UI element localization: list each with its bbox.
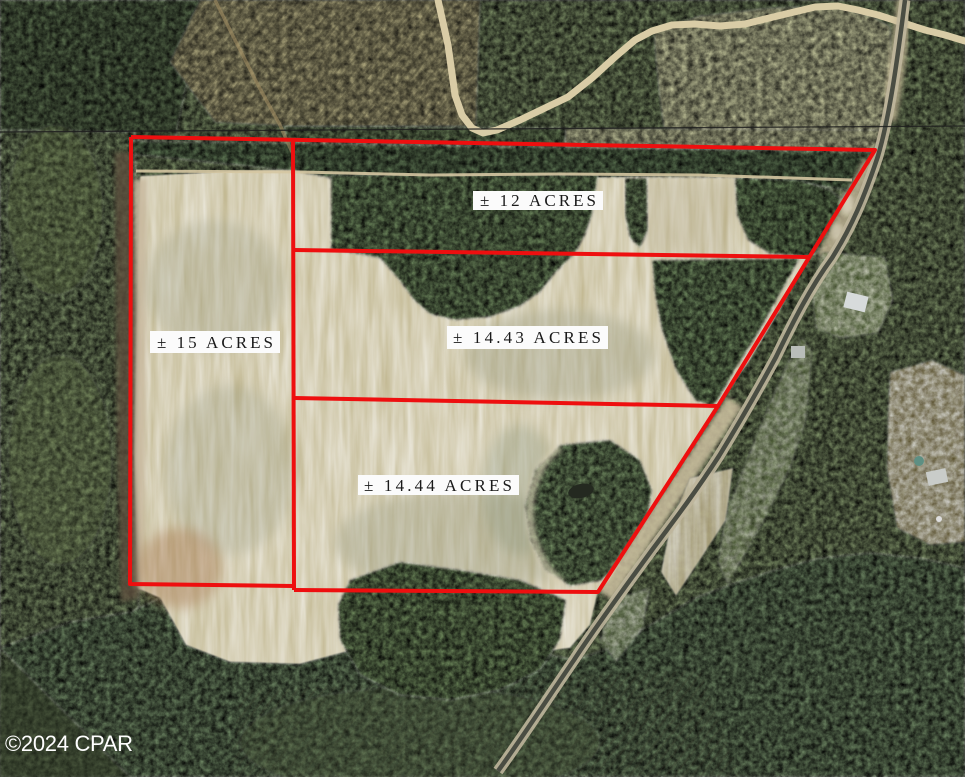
svg-text:± 14.43 ACRES: ± 14.43 ACRES [453,328,601,347]
svg-text:± 14.44 ACRES: ± 14.44 ACRES [364,476,512,495]
svg-text:©2024 CPAR: ©2024 CPAR [5,731,133,756]
